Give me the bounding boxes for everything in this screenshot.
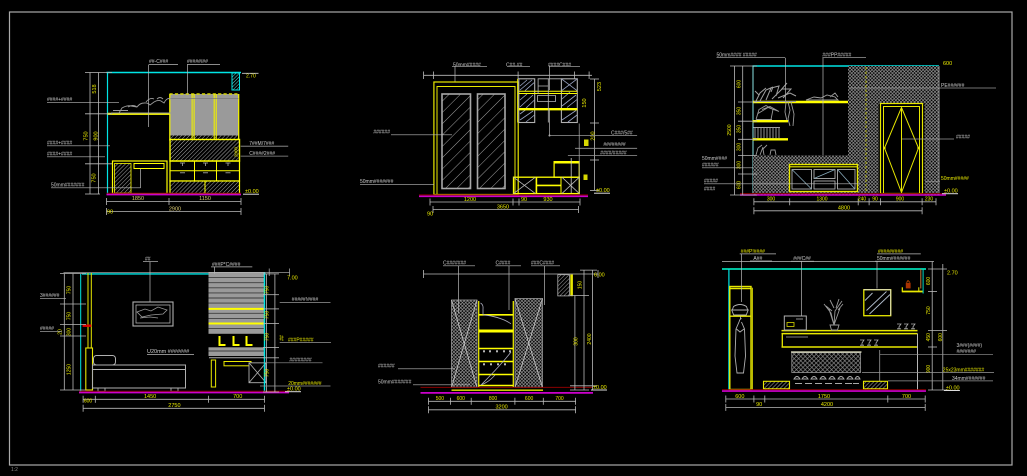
svg-text:300: 300	[573, 337, 579, 346]
svg-text:6.00: 6.00	[594, 273, 605, 279]
svg-text:2000: 2000	[234, 146, 239, 157]
svg-text:50mm####: 50mm####	[702, 156, 727, 162]
svg-text:2.70: 2.70	[246, 74, 256, 80]
svg-text:2750: 2750	[168, 403, 180, 409]
svg-text:1200: 1200	[464, 197, 476, 203]
svg-text:900: 900	[896, 197, 905, 203]
svg-text:230: 230	[925, 197, 934, 203]
svg-text:1750: 1750	[818, 394, 830, 400]
svg-text:600: 600	[926, 277, 932, 286]
svg-text:750: 750	[66, 312, 72, 321]
svg-text:####: ####	[704, 187, 715, 193]
svg-text:50mm#####: 50mm#####	[941, 176, 969, 182]
svg-text:750: 750	[265, 369, 271, 378]
svg-text:90: 90	[756, 402, 762, 408]
svg-text:750: 750	[265, 311, 271, 320]
svg-text:150: 150	[582, 98, 588, 107]
svg-text:700: 700	[233, 394, 242, 400]
svg-text:4800: 4800	[838, 206, 850, 212]
svg-text:90: 90	[872, 197, 878, 203]
svg-text:750: 750	[926, 306, 932, 315]
svg-text:600: 600	[735, 394, 744, 400]
svg-text:700: 700	[902, 394, 911, 400]
svg-text:600: 600	[737, 80, 743, 89]
svg-text:518: 518	[92, 84, 98, 93]
svg-text:600: 600	[525, 396, 534, 402]
svg-text:750: 750	[84, 131, 90, 140]
svg-text:350: 350	[737, 107, 743, 116]
svg-text:750: 750	[265, 333, 271, 342]
svg-text:1450: 1450	[144, 394, 156, 400]
svg-text:2400: 2400	[587, 333, 593, 344]
svg-text:300: 300	[66, 328, 72, 337]
svg-text:750: 750	[265, 286, 271, 295]
svg-text:150: 150	[578, 281, 584, 290]
svg-text:90: 90	[521, 197, 527, 203]
svg-text:1300: 1300	[816, 197, 827, 203]
svg-text:2900: 2900	[169, 206, 181, 212]
svg-text:######: ######	[373, 130, 390, 136]
svg-text:#####/##: #####/##	[187, 59, 208, 65]
svg-text:900: 900	[94, 131, 100, 140]
svg-text:7.00: 7.00	[287, 275, 298, 281]
svg-text:750: 750	[92, 173, 98, 182]
svg-text:600: 600	[737, 181, 743, 190]
svg-text:600: 600	[943, 61, 952, 67]
svg-text:#######: #######	[957, 349, 977, 355]
svg-text:450: 450	[926, 333, 932, 342]
svg-text:800: 800	[489, 396, 498, 402]
svg-text:350: 350	[737, 125, 743, 134]
svg-text:2500: 2500	[727, 124, 733, 135]
svg-text:####C###: ####C###	[548, 63, 571, 69]
svg-text:90: 90	[427, 212, 433, 218]
svg-text:50mm#######: 50mm#######	[378, 380, 412, 386]
svg-text:300: 300	[737, 143, 743, 152]
svg-text:500: 500	[436, 396, 445, 402]
svg-text:20: 20	[58, 329, 64, 335]
svg-text:200: 200	[591, 131, 597, 140]
svg-text:1250: 1250	[66, 364, 72, 375]
svg-text:300: 300	[767, 197, 776, 203]
svg-text:2.70: 2.70	[947, 271, 958, 277]
svg-text:1:2: 1:2	[11, 467, 18, 473]
svg-text:3650: 3650	[497, 204, 509, 210]
svg-text:900: 900	[926, 365, 932, 374]
svg-text:240: 240	[858, 197, 867, 203]
svg-text:########: ########	[603, 142, 625, 148]
svg-text:700: 700	[555, 396, 564, 402]
svg-text:1850: 1850	[132, 196, 144, 202]
svg-text:750: 750	[66, 286, 72, 295]
svg-text:600: 600	[457, 396, 466, 402]
svg-text:930: 930	[543, 197, 552, 203]
svg-text:##-C###: ##-C###	[149, 59, 168, 65]
svg-text:50mm#####: 50mm#####	[453, 63, 481, 69]
svg-text:#####: #####	[956, 135, 970, 141]
svg-text:600: 600	[84, 399, 93, 405]
svg-text:1150: 1150	[199, 196, 211, 202]
svg-text:3200: 3200	[495, 405, 507, 411]
svg-text:PE######: PE######	[941, 83, 965, 89]
svg-text:4200: 4200	[821, 402, 833, 408]
svg-text:C##-##: C##-##	[506, 63, 523, 69]
svg-text:##: ##	[280, 335, 286, 341]
svg-text:523: 523	[597, 82, 603, 91]
svg-text:600: 600	[938, 333, 944, 342]
svg-text:######: ######	[378, 364, 395, 370]
svg-text:90: 90	[107, 210, 113, 216]
svg-text:U20mm #######: U20mm #######	[147, 349, 190, 355]
